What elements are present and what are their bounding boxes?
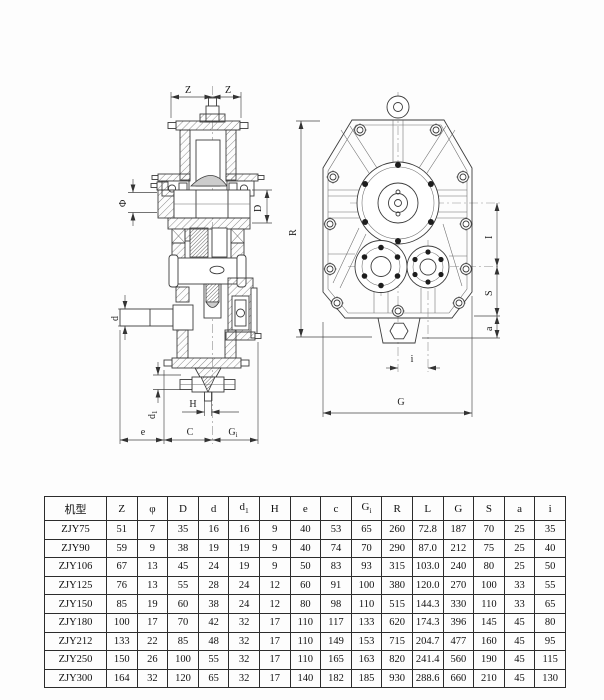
value-cell: 67 — [107, 558, 138, 577]
value-cell: 65 — [198, 669, 229, 688]
value-cell: 45 — [504, 632, 535, 651]
column-header: 机型 — [45, 497, 107, 521]
value-cell: 477 — [443, 632, 474, 651]
value-cell: 32 — [229, 613, 260, 632]
table-header-row: 机型ZφDdd1HecGiRLGSai — [45, 497, 566, 521]
table-row: ZJY25015026100553217110165163820241.4560… — [45, 651, 566, 670]
value-cell: 65 — [535, 595, 566, 614]
value-cell: 38 — [168, 539, 199, 558]
value-cell: 24 — [229, 595, 260, 614]
value-cell: 51 — [107, 521, 138, 540]
value-cell: 117 — [321, 613, 352, 632]
value-cell: 12 — [259, 576, 290, 595]
value-cell: 100 — [168, 651, 199, 670]
model-cell: ZJY75 — [45, 521, 107, 540]
value-cell: 70 — [351, 539, 382, 558]
column-header: R — [382, 497, 413, 521]
value-cell: 26 — [137, 651, 168, 670]
value-cell: 174.3 — [412, 613, 443, 632]
value-cell: 13 — [137, 558, 168, 577]
side-view-drawing: Z Z Φ D d d1 H — [110, 85, 272, 444]
value-cell: 165 — [321, 651, 352, 670]
column-header: d — [198, 497, 229, 521]
column-header: d1 — [229, 497, 260, 521]
technical-drawing-page: Z Z Φ D d d1 H — [0, 0, 604, 700]
value-cell: 110 — [290, 632, 321, 651]
column-header: e — [290, 497, 321, 521]
dim-label-d: d — [110, 316, 121, 321]
value-cell: 120 — [168, 669, 199, 688]
dim-label-G: G — [397, 397, 404, 408]
value-cell: 70 — [168, 613, 199, 632]
value-cell: 149 — [321, 632, 352, 651]
column-header: D — [168, 497, 199, 521]
value-cell: 55 — [168, 576, 199, 595]
column-header: Z — [107, 497, 138, 521]
value-cell: 100 — [474, 576, 505, 595]
value-cell: 85 — [168, 632, 199, 651]
value-cell: 24 — [229, 576, 260, 595]
value-cell: 98 — [321, 595, 352, 614]
value-cell: 930 — [382, 669, 413, 688]
value-cell: 32 — [229, 651, 260, 670]
value-cell: 17 — [259, 632, 290, 651]
value-cell: 290 — [382, 539, 413, 558]
value-cell: 185 — [351, 669, 382, 688]
value-cell: 187 — [443, 521, 474, 540]
dim-label-i: i — [411, 354, 414, 365]
value-cell: 144.3 — [412, 595, 443, 614]
value-cell: 17 — [259, 669, 290, 688]
value-cell: 140 — [290, 669, 321, 688]
value-cell: 40 — [290, 521, 321, 540]
value-cell: 25 — [504, 521, 535, 540]
value-cell: 145 — [474, 613, 505, 632]
value-cell: 515 — [382, 595, 413, 614]
column-header: H — [259, 497, 290, 521]
value-cell: 100 — [351, 576, 382, 595]
value-cell: 45 — [504, 651, 535, 670]
value-cell: 95 — [535, 632, 566, 651]
dim-label-D: D — [253, 205, 264, 212]
value-cell: 110 — [474, 595, 505, 614]
model-cell: ZJY106 — [45, 558, 107, 577]
value-cell: 22 — [137, 632, 168, 651]
value-cell: 9 — [259, 521, 290, 540]
table-row: ZJY1257613552824126091100380120.02701003… — [45, 576, 566, 595]
dim-label-G1: Gi — [228, 427, 237, 439]
value-cell: 60 — [290, 576, 321, 595]
value-cell: 19 — [229, 558, 260, 577]
value-cell: 45 — [504, 613, 535, 632]
dim-label-phi: Φ — [118, 200, 129, 207]
model-cell: ZJY90 — [45, 539, 107, 558]
value-cell: 80 — [474, 558, 505, 577]
value-cell: 76 — [107, 576, 138, 595]
model-cell: ZJY212 — [45, 632, 107, 651]
value-cell: 150 — [107, 651, 138, 670]
table-row: ZJY75517351616940536526072.8187702535 — [45, 521, 566, 540]
table-row: ZJY2121332285483217110149153715204.74771… — [45, 632, 566, 651]
dim-label-C: C — [187, 427, 194, 438]
value-cell: 9 — [259, 539, 290, 558]
column-header: Gi — [351, 497, 382, 521]
value-cell: 91 — [321, 576, 352, 595]
value-cell: 16 — [198, 521, 229, 540]
value-cell: 330 — [443, 595, 474, 614]
value-cell: 396 — [443, 613, 474, 632]
dim-label-z-right: Z — [225, 85, 231, 96]
table-row: ZJY1801001770423217110117133620174.33961… — [45, 613, 566, 632]
value-cell: 93 — [351, 558, 382, 577]
value-cell: 38 — [198, 595, 229, 614]
value-cell: 70 — [474, 521, 505, 540]
value-cell: 85 — [107, 595, 138, 614]
value-cell: 9 — [137, 539, 168, 558]
value-cell: 110 — [290, 613, 321, 632]
value-cell: 820 — [382, 651, 413, 670]
dim-label-I: I — [484, 236, 495, 239]
value-cell: 17 — [259, 651, 290, 670]
value-cell: 17 — [259, 613, 290, 632]
value-cell: 120.0 — [412, 576, 443, 595]
value-cell: 74 — [321, 539, 352, 558]
value-cell: 60 — [168, 595, 199, 614]
value-cell: 17 — [137, 613, 168, 632]
column-header: L — [412, 497, 443, 521]
value-cell: 12 — [259, 595, 290, 614]
value-cell: 241.4 — [412, 651, 443, 670]
value-cell: 9 — [259, 558, 290, 577]
value-cell: 40 — [290, 539, 321, 558]
table-body: ZJY75517351616940536526072.8187702535ZJY… — [45, 521, 566, 688]
value-cell: 50 — [290, 558, 321, 577]
value-cell: 42 — [198, 613, 229, 632]
value-cell: 80 — [535, 613, 566, 632]
model-cell: ZJY180 — [45, 613, 107, 632]
value-cell: 164 — [107, 669, 138, 688]
value-cell: 83 — [321, 558, 352, 577]
value-cell: 210 — [474, 669, 505, 688]
value-cell: 620 — [382, 613, 413, 632]
value-cell: 115 — [535, 651, 566, 670]
table-row: ZJY1508519603824128098110515144.33301103… — [45, 595, 566, 614]
value-cell: 315 — [382, 558, 413, 577]
column-header: φ — [137, 497, 168, 521]
value-cell: 53 — [321, 521, 352, 540]
table-row: ZJY90599381919940747029087.0212752540 — [45, 539, 566, 558]
value-cell: 33 — [504, 576, 535, 595]
value-cell: 48 — [198, 632, 229, 651]
model-cell: ZJY125 — [45, 576, 107, 595]
column-header: i — [535, 497, 566, 521]
value-cell: 660 — [443, 669, 474, 688]
value-cell: 715 — [382, 632, 413, 651]
value-cell: 190 — [474, 651, 505, 670]
value-cell: 7 — [137, 521, 168, 540]
value-cell: 45 — [168, 558, 199, 577]
value-cell: 380 — [382, 576, 413, 595]
value-cell: 87.0 — [412, 539, 443, 558]
value-cell: 19 — [137, 595, 168, 614]
gear-reducer-drawings: Z Z Φ D d d1 H — [0, 0, 604, 496]
value-cell: 133 — [351, 613, 382, 632]
value-cell: 16 — [229, 521, 260, 540]
value-cell: 65 — [351, 521, 382, 540]
value-cell: 55 — [198, 651, 229, 670]
value-cell: 560 — [443, 651, 474, 670]
value-cell: 80 — [290, 595, 321, 614]
value-cell: 13 — [137, 576, 168, 595]
value-cell: 240 — [443, 558, 474, 577]
value-cell: 75 — [474, 539, 505, 558]
value-cell: 55 — [535, 576, 566, 595]
dim-label-S: S — [484, 290, 495, 296]
value-cell: 32 — [229, 669, 260, 688]
value-cell: 40 — [535, 539, 566, 558]
dim-label-e: e — [141, 427, 146, 438]
value-cell: 25 — [504, 539, 535, 558]
value-cell: 204.7 — [412, 632, 443, 651]
value-cell: 110 — [351, 595, 382, 614]
value-cell: 103.0 — [412, 558, 443, 577]
value-cell: 110 — [290, 651, 321, 670]
value-cell: 100 — [107, 613, 138, 632]
dimension-table: 机型ZφDdd1HecGiRLGSai ZJY75517351616940536… — [44, 496, 566, 688]
value-cell: 28 — [198, 576, 229, 595]
table-row: ZJY30016432120653217140182185930288.6660… — [45, 669, 566, 688]
column-header: c — [321, 497, 352, 521]
table-row: ZJY10667134524199508393315103.0240802550 — [45, 558, 566, 577]
model-cell: ZJY300 — [45, 669, 107, 688]
dim-label-R: R — [288, 229, 299, 236]
value-cell: 133 — [107, 632, 138, 651]
value-cell: 32 — [137, 669, 168, 688]
model-cell: ZJY250 — [45, 651, 107, 670]
dim-label-d1: d1 — [147, 410, 159, 419]
value-cell: 32 — [229, 632, 260, 651]
value-cell: 260 — [382, 521, 413, 540]
value-cell: 163 — [351, 651, 382, 670]
dim-label-z-left: Z — [185, 85, 191, 96]
column-header: a — [504, 497, 535, 521]
value-cell: 212 — [443, 539, 474, 558]
column-header: S — [474, 497, 505, 521]
value-cell: 288.6 — [412, 669, 443, 688]
model-cell: ZJY150 — [45, 595, 107, 614]
value-cell: 19 — [198, 539, 229, 558]
dim-label-H: H — [189, 399, 196, 410]
value-cell: 24 — [198, 558, 229, 577]
value-cell: 153 — [351, 632, 382, 651]
front-view-drawing: i G I S a — [323, 92, 500, 417]
value-cell: 33 — [504, 595, 535, 614]
value-cell: 160 — [474, 632, 505, 651]
value-cell: 35 — [535, 521, 566, 540]
value-cell: 19 — [229, 539, 260, 558]
column-header: G — [443, 497, 474, 521]
value-cell: 35 — [168, 521, 199, 540]
value-cell: 45 — [504, 669, 535, 688]
value-cell: 182 — [321, 669, 352, 688]
value-cell: 72.8 — [412, 521, 443, 540]
value-cell: 270 — [443, 576, 474, 595]
dim-label-a: a — [484, 326, 495, 331]
value-cell: 59 — [107, 539, 138, 558]
value-cell: 25 — [504, 558, 535, 577]
value-cell: 130 — [535, 669, 566, 688]
value-cell: 50 — [535, 558, 566, 577]
